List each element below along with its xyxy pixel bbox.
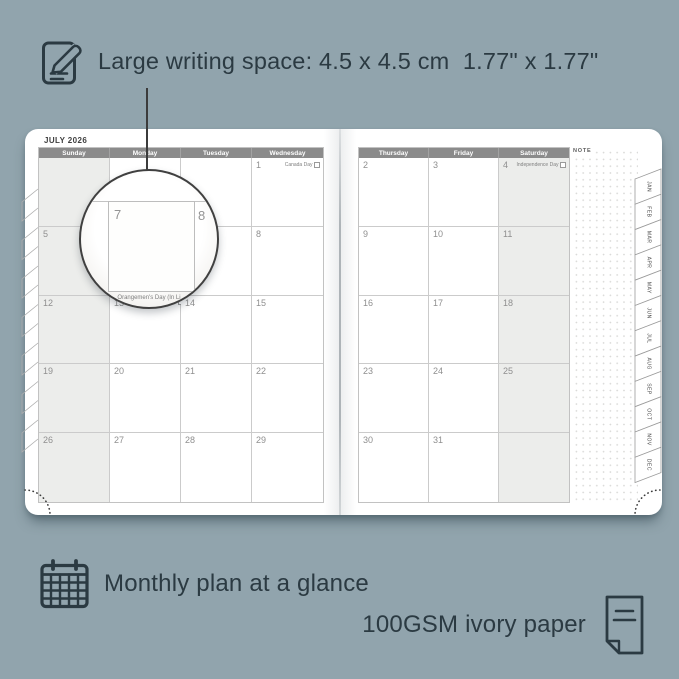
date-number: 4 (499, 158, 508, 170)
date-number: 15 (252, 296, 266, 308)
calendar-cell (499, 433, 569, 502)
corner-dots-right (628, 484, 662, 516)
date-number: 26 (39, 433, 53, 445)
calendar-cell: 1Canada Day (252, 158, 323, 227)
date-number: 20 (110, 364, 124, 376)
calendar-cell: 12 (39, 296, 110, 365)
date-number: 10 (429, 227, 443, 239)
month-tab-label: AUG (646, 358, 652, 370)
date-number: 22 (252, 364, 266, 376)
calendar-cell: 28 (181, 433, 252, 502)
date-number: 30 (359, 433, 373, 445)
date-number: 5 (39, 227, 48, 239)
date-number: 17 (429, 296, 443, 308)
page-edge-tab (22, 420, 38, 452)
calendar-cell: 19 (39, 364, 110, 433)
paper-sheet-icon (603, 595, 646, 655)
day-header: Saturday (499, 148, 569, 158)
calendar-cell: 22 (252, 364, 323, 433)
corner-dots-left (23, 484, 53, 516)
month-tab-label: JAN (646, 181, 652, 192)
day-header: Thursday (359, 148, 429, 158)
right-page-grid: ThursdayFridaySaturday234Independence Da… (358, 147, 570, 503)
calendar-cell: 14 (181, 296, 252, 365)
calendar-cell: 25 (499, 364, 569, 433)
top-annotation-text: Large writing space: 4.5 x 4.5 cm 1.77" … (98, 48, 598, 75)
checkbox-icon (560, 162, 566, 168)
book-spine (339, 129, 341, 515)
date-number: 24 (429, 364, 443, 376)
note-label: NOTE (573, 148, 594, 154)
date-number: 18 (499, 296, 513, 308)
calendar-cell: 23 (359, 364, 429, 433)
month-tab-label: FEB (646, 206, 652, 217)
page-edge-tab (22, 305, 38, 337)
date-number: 16 (359, 296, 373, 308)
calendar-cell: 29 (252, 433, 323, 502)
day-header: Sunday (39, 148, 110, 158)
holiday-label: Canada Day (285, 158, 323, 168)
page-edge-tab (22, 382, 38, 414)
date-number: 25 (499, 364, 513, 376)
date-number: 31 (429, 433, 443, 445)
date-number: 21 (181, 364, 195, 376)
page-edge-tab (22, 189, 38, 221)
page-edge-tab (22, 343, 38, 375)
day-header: Wednesday (252, 148, 323, 158)
calendar-cell: 17 (429, 296, 499, 365)
calendar-grid-icon (40, 559, 89, 609)
left-edge-tabs (21, 188, 39, 460)
calendar-cell: 3 (429, 158, 499, 227)
magnified-date: 8 (198, 208, 205, 223)
date-number: 12 (39, 296, 53, 308)
bottom-left-annotation-text: Monthly plan at a glance (104, 570, 369, 598)
page-edge-tab (22, 266, 38, 298)
month-tab-label: MAR (646, 231, 652, 244)
calendar-cell: 18 (499, 296, 569, 365)
calendar-cell: 30 (359, 433, 429, 502)
month-tab-label: OCT (646, 408, 652, 420)
calendar-cell: 2 (359, 158, 429, 227)
month-tab-label: NOV (646, 433, 652, 446)
bottom-left-annotation: Monthly plan at a glance (40, 559, 369, 609)
date-number: 11 (499, 227, 512, 239)
month-tab-label: DEC (646, 459, 652, 471)
month-title: JULY 2026 (44, 136, 87, 145)
note-pencil-icon (41, 36, 87, 86)
magnified-date: 7 (114, 207, 121, 222)
day-header: Tuesday (181, 148, 252, 158)
month-tab-label: SEP (646, 383, 652, 395)
calendar-cell: 8 (252, 227, 323, 296)
holiday-label: Independence Day (517, 158, 569, 168)
calendar-cell: 24 (429, 364, 499, 433)
date-number: 2 (359, 158, 368, 170)
calendar-cell: 16 (359, 296, 429, 365)
calendar-cell: 21 (181, 364, 252, 433)
top-annotation: Large writing space: 4.5 x 4.5 cm 1.77" … (41, 36, 598, 86)
date-number: 9 (359, 227, 368, 239)
calendar-cell: 27 (110, 433, 181, 502)
date-number: 1 (252, 158, 261, 170)
calendar-cell: 31 (429, 433, 499, 502)
magnifier-circle: 7 8 Orangemen's Day (In Li (79, 169, 219, 309)
gutter-shade-left (324, 129, 339, 515)
date-number: 3 (429, 158, 438, 170)
gutter-shade-right (341, 129, 356, 515)
date-number: 27 (110, 433, 124, 445)
date-number: 28 (181, 433, 195, 445)
day-header: Friday (429, 148, 499, 158)
month-tab-label: JUL (646, 333, 652, 343)
magnified-holiday-label: Orangemen's Day (In Li (81, 295, 217, 301)
calendar-cell: 20 (110, 364, 181, 433)
calendar-cell: 15 (252, 296, 323, 365)
calendar-cell: 10 (429, 227, 499, 296)
date-number: 29 (252, 433, 266, 445)
date-number: 8 (252, 227, 261, 239)
month-tabs: JANFEBMARAPRMAYJUNJULAUGSEPOCTNOVDEC (634, 168, 662, 484)
calendar-cell: 11 (499, 227, 569, 296)
bottom-right-annotation-text: 100GSM ivory paper (362, 611, 586, 639)
calendar-cell: 9 (359, 227, 429, 296)
date-number: 23 (359, 364, 373, 376)
callout-line (146, 88, 148, 170)
calendar-cell: 4Independence Day (499, 158, 569, 227)
product-image: Large writing space: 4.5 x 4.5 cm 1.77" … (0, 0, 679, 679)
month-tab-label: JUN (646, 307, 652, 318)
note-area: NOTE (572, 147, 638, 501)
month-tab-label: APR (646, 257, 652, 269)
checkbox-icon (314, 162, 320, 168)
page-edge-tab (22, 228, 38, 260)
date-number: 19 (39, 364, 53, 376)
month-tab-label: MAY (646, 282, 652, 294)
bottom-right-annotation: 100GSM ivory paper (362, 595, 646, 655)
